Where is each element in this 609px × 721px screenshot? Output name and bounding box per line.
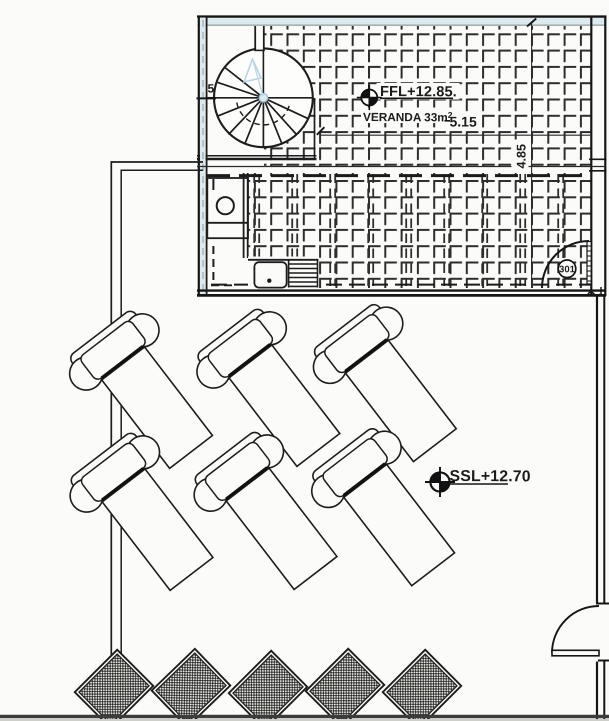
svg-text:VERANDA 33m2: VERANDA 33m2: [363, 110, 453, 125]
svg-text:5: 5: [208, 82, 215, 96]
svg-text:SSL+12.70: SSL+12.70: [449, 468, 530, 485]
svg-text:4.85: 4.85: [515, 144, 529, 169]
svg-text:5.15: 5.15: [449, 114, 477, 130]
svg-text:301: 301: [559, 264, 576, 275]
